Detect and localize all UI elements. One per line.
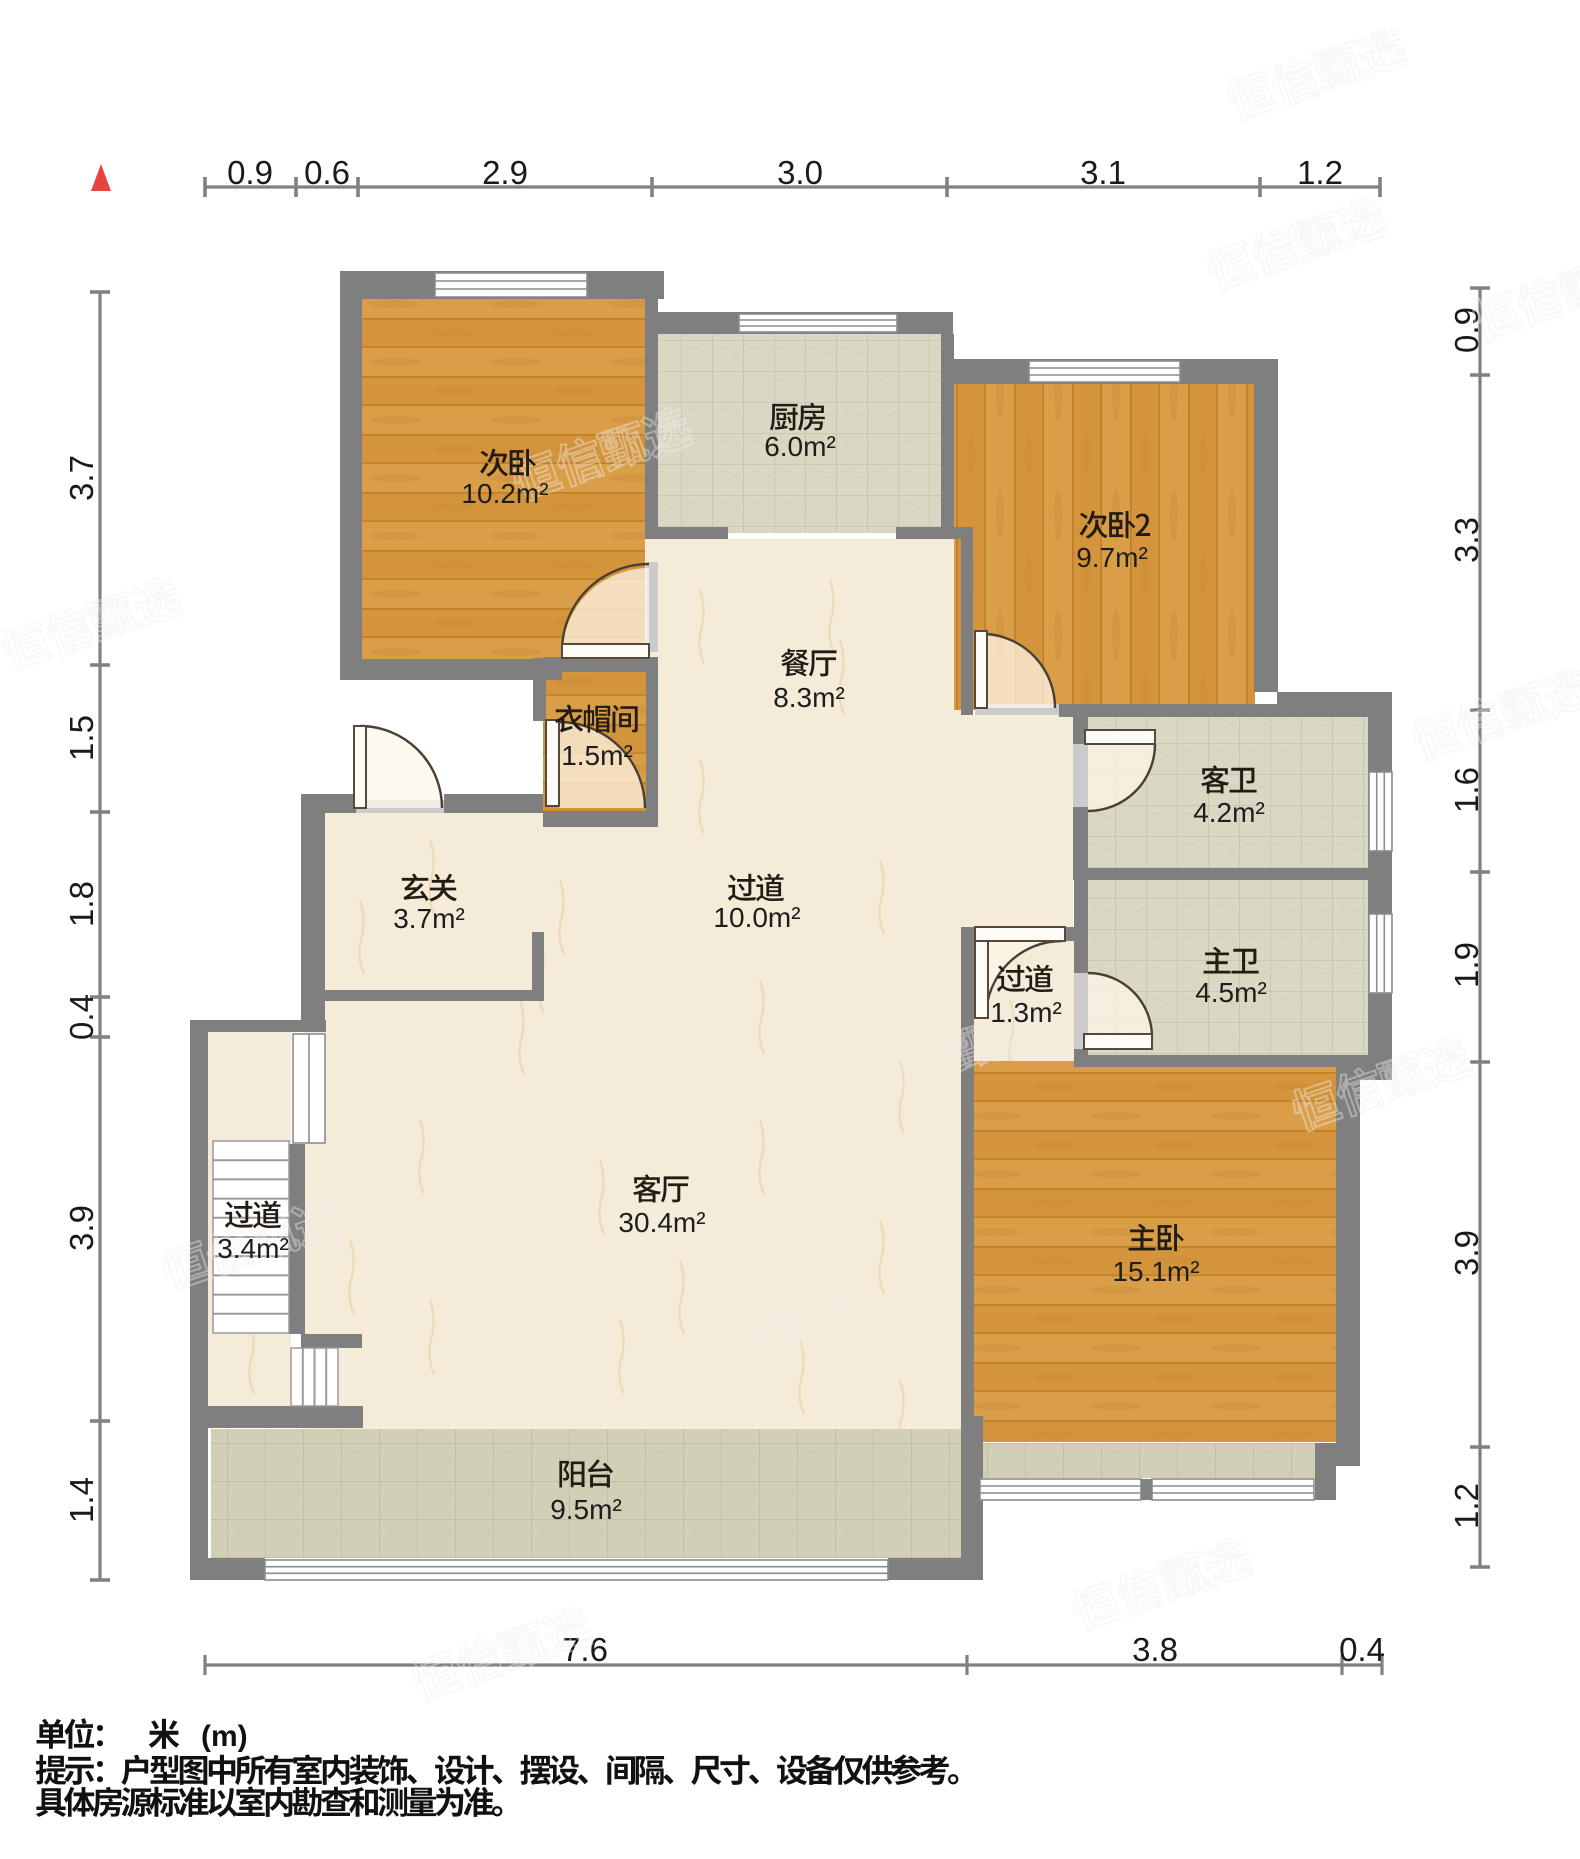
svg-text:3.1: 3.1 (1080, 154, 1126, 191)
svg-text:1.5: 1.5 (63, 715, 100, 761)
svg-text:1.3m²: 1.3m² (990, 997, 1062, 1028)
svg-text:6.0m²: 6.0m² (764, 431, 836, 462)
svg-text:0.6: 0.6 (304, 154, 350, 191)
svg-text:3.0: 3.0 (777, 154, 823, 191)
svg-text:15.1m²: 15.1m² (1112, 1256, 1199, 1287)
svg-text:9.7m²: 9.7m² (1076, 542, 1148, 573)
svg-text:10.2m²: 10.2m² (461, 478, 548, 509)
svg-text:1.2: 1.2 (1297, 154, 1343, 191)
svg-text:0.9: 0.9 (227, 154, 273, 191)
svg-text:3.7: 3.7 (63, 455, 100, 501)
svg-text:3.4m²: 3.4m² (217, 1233, 289, 1264)
svg-text:3.8: 3.8 (1132, 1631, 1178, 1668)
svg-text:1.2: 1.2 (1448, 1483, 1485, 1529)
svg-text:1.4: 1.4 (63, 1477, 100, 1523)
svg-text:3.9: 3.9 (1448, 1230, 1485, 1276)
svg-text:30.4m²: 30.4m² (618, 1207, 705, 1238)
svg-text:9.5m²: 9.5m² (550, 1494, 622, 1525)
svg-text:2.9: 2.9 (482, 154, 528, 191)
svg-text:(m): (m) (201, 1720, 248, 1753)
svg-text:8.3m²: 8.3m² (773, 682, 845, 713)
svg-text:1.9: 1.9 (1448, 942, 1485, 988)
svg-text:10.0m²: 10.0m² (713, 902, 800, 933)
svg-text:4.5m²: 4.5m² (1195, 977, 1267, 1008)
svg-text:3.3: 3.3 (1448, 517, 1485, 563)
svg-text:0.4: 0.4 (63, 994, 100, 1040)
svg-text:7.6: 7.6 (562, 1631, 608, 1668)
svg-text:1.8: 1.8 (63, 881, 100, 927)
svg-text:1.6: 1.6 (1448, 767, 1485, 813)
svg-text:3.9: 3.9 (63, 1205, 100, 1251)
svg-text:3.7m²: 3.7m² (393, 903, 465, 934)
svg-text:1.5m²: 1.5m² (561, 740, 633, 771)
svg-text:4.2m²: 4.2m² (1193, 797, 1265, 828)
svg-text:0.4: 0.4 (1339, 1631, 1385, 1668)
